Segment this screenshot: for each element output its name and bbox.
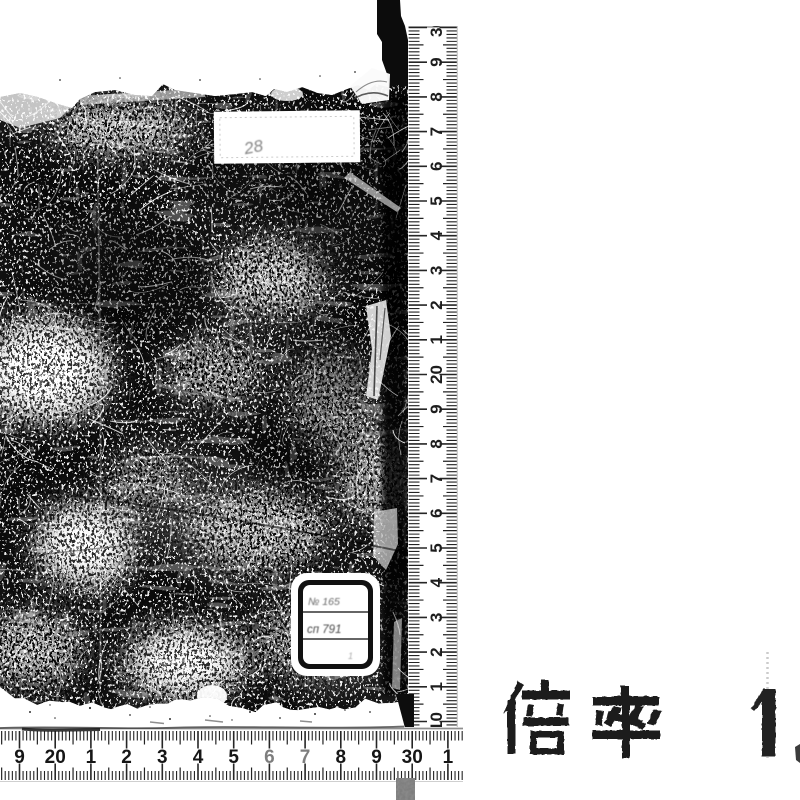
svg-text:20: 20 [427, 365, 446, 384]
svg-text:7: 7 [427, 127, 446, 136]
svg-text:5: 5 [427, 196, 446, 205]
svg-text:3: 3 [157, 747, 168, 768]
svg-text:7: 7 [427, 474, 446, 483]
svg-text:2: 2 [121, 747, 132, 768]
svg-text:6: 6 [264, 747, 275, 768]
svg-text:5: 5 [427, 543, 446, 552]
svg-text:9: 9 [427, 57, 446, 66]
svg-text:4: 4 [193, 747, 204, 768]
svg-text:3: 3 [427, 266, 446, 275]
svg-text:8: 8 [336, 747, 347, 768]
svg-text:1: 1 [443, 747, 454, 768]
svg-text:30: 30 [402, 747, 423, 768]
svg-text:4: 4 [427, 230, 446, 240]
svg-text:5: 5 [228, 747, 239, 768]
svg-text:2: 2 [427, 647, 446, 656]
svg-text:8: 8 [427, 92, 446, 101]
svg-text:9: 9 [427, 404, 446, 413]
svg-text:3: 3 [427, 613, 446, 622]
svg-text:9: 9 [14, 747, 25, 768]
svg-text:1: 1 [427, 335, 446, 344]
svg-text:9: 9 [371, 747, 382, 768]
svg-text:6: 6 [427, 162, 446, 171]
svg-text:2: 2 [427, 300, 446, 309]
svg-text:20: 20 [45, 747, 66, 768]
svg-text:1: 1 [348, 651, 353, 661]
svg-text:1: 1 [86, 747, 97, 768]
svg-text:7: 7 [300, 747, 311, 768]
svg-text:сп 791: сп 791 [307, 624, 341, 636]
svg-text:6: 6 [427, 509, 446, 518]
svg-text:28: 28 [241, 136, 265, 158]
svg-text:№ 165: № 165 [308, 596, 340, 608]
svg-text:4: 4 [427, 577, 446, 587]
svg-text:1: 1 [427, 682, 446, 691]
svg-text:8: 8 [427, 439, 446, 448]
